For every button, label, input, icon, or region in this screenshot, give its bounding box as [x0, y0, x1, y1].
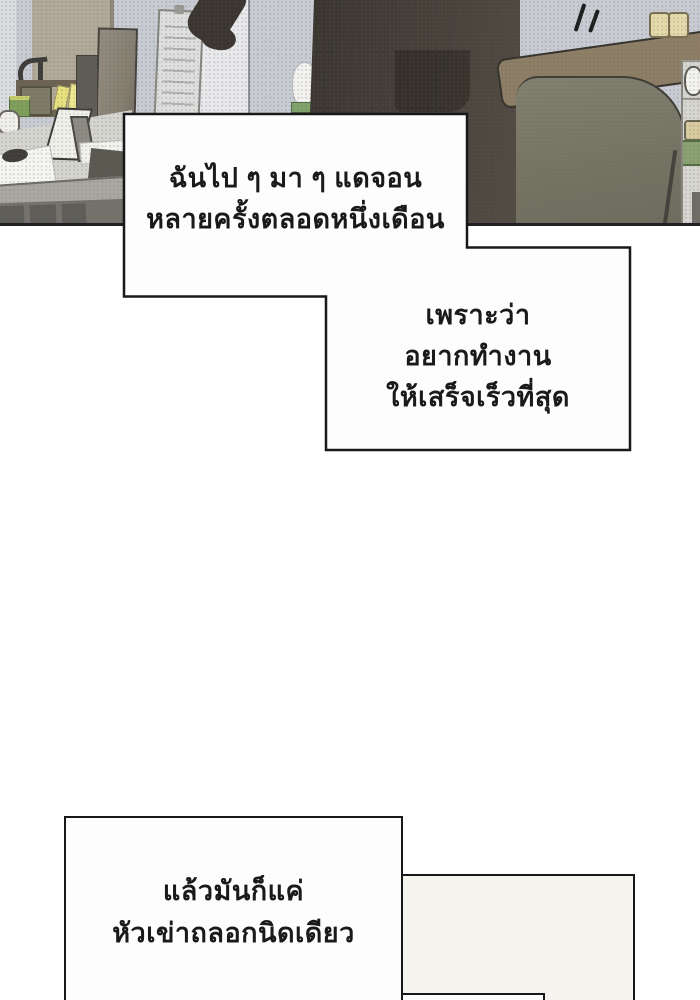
- bubble1-line-1: ฉันไป ๆ มา ๆ แดจอน: [124, 158, 467, 199]
- bubble3-line-1: แล้วมันก็แค่: [64, 870, 403, 912]
- bubble3-line-2: หัวเข่าถลอกนิดเดียว: [64, 912, 403, 954]
- comic-page: ฉันไป ๆ มา ๆ แดจอน หลายครั้งตลอดหนึ่งเดื…: [0, 0, 700, 1000]
- bubble2-line-3: ให้เสร็จเร็วที่สุด: [326, 377, 630, 418]
- bubble2-line-1: เพราะว่า: [326, 295, 630, 336]
- speech-bubble-4: [401, 874, 635, 1000]
- speech-bubble-1-text: ฉันไป ๆ มา ๆ แดจอน หลายครั้งตลอดหนึ่งเดื…: [124, 158, 467, 240]
- bubble2-line-2: อยากทำงาน: [326, 336, 630, 377]
- speech-bubble-3-text: แล้วมันก็แค่ หัวเข่าถลอกนิดเดียว: [64, 870, 403, 954]
- bubble1-line-2: หลายครั้งตลอดหนึ่งเดือน: [124, 199, 467, 240]
- speech-bubble-2-text: เพราะว่า อยากทำงาน ให้เสร็จเร็วที่สุด: [326, 295, 630, 418]
